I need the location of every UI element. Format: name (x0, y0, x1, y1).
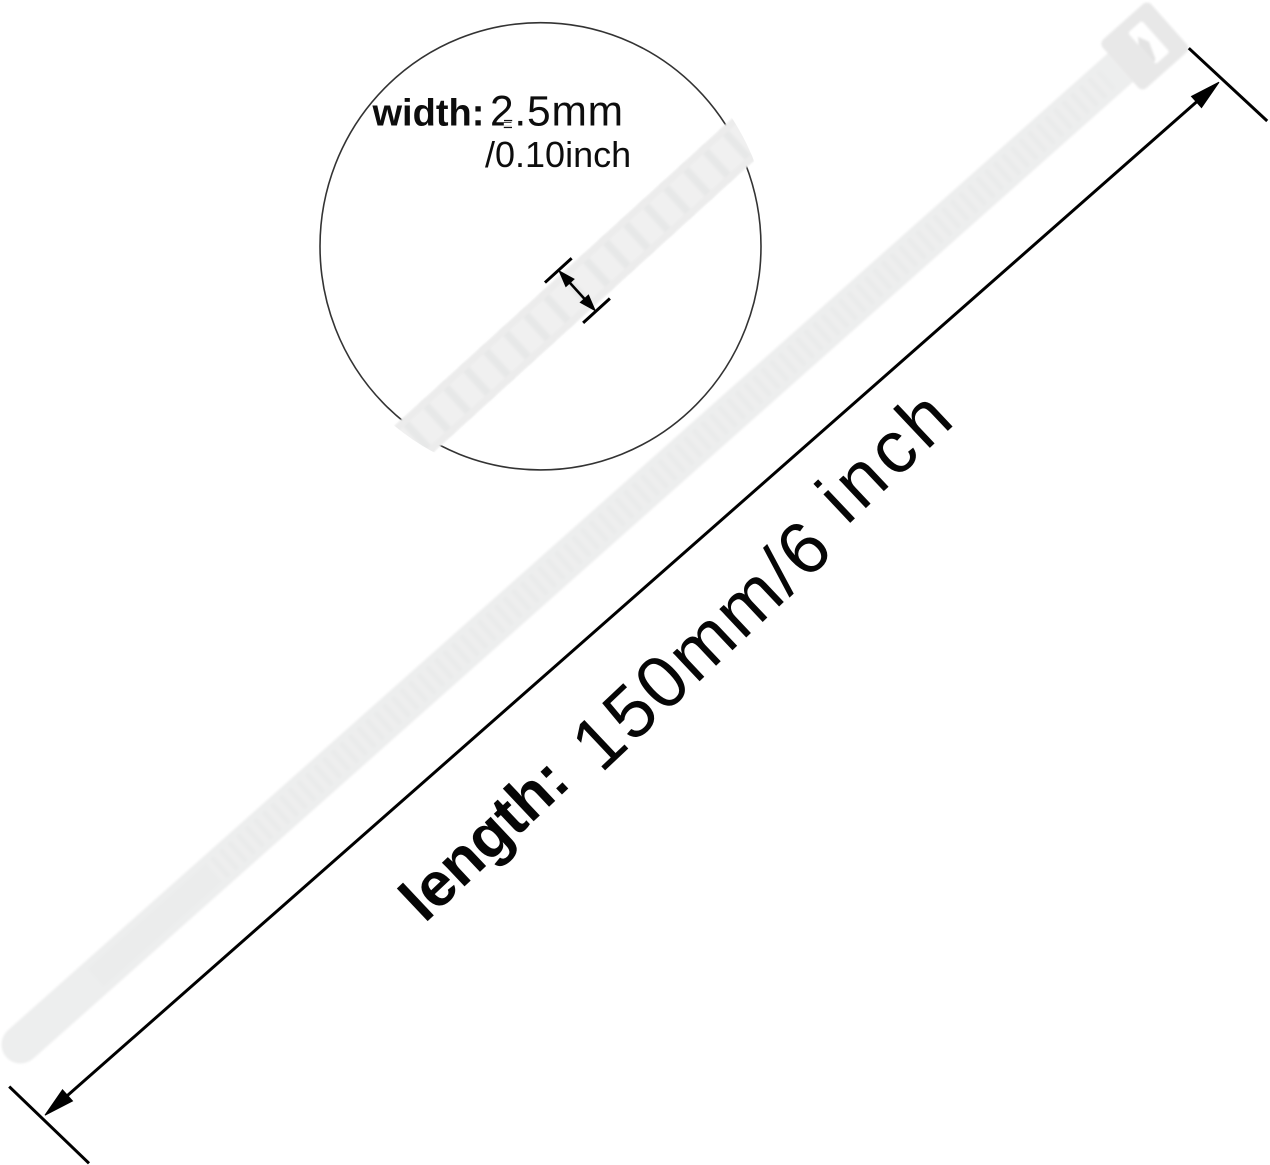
svg-text:/0.10inch: /0.10inch (485, 134, 631, 175)
svg-text:2.5mm: 2.5mm (490, 89, 624, 136)
svg-text:width:: width: (372, 93, 485, 135)
